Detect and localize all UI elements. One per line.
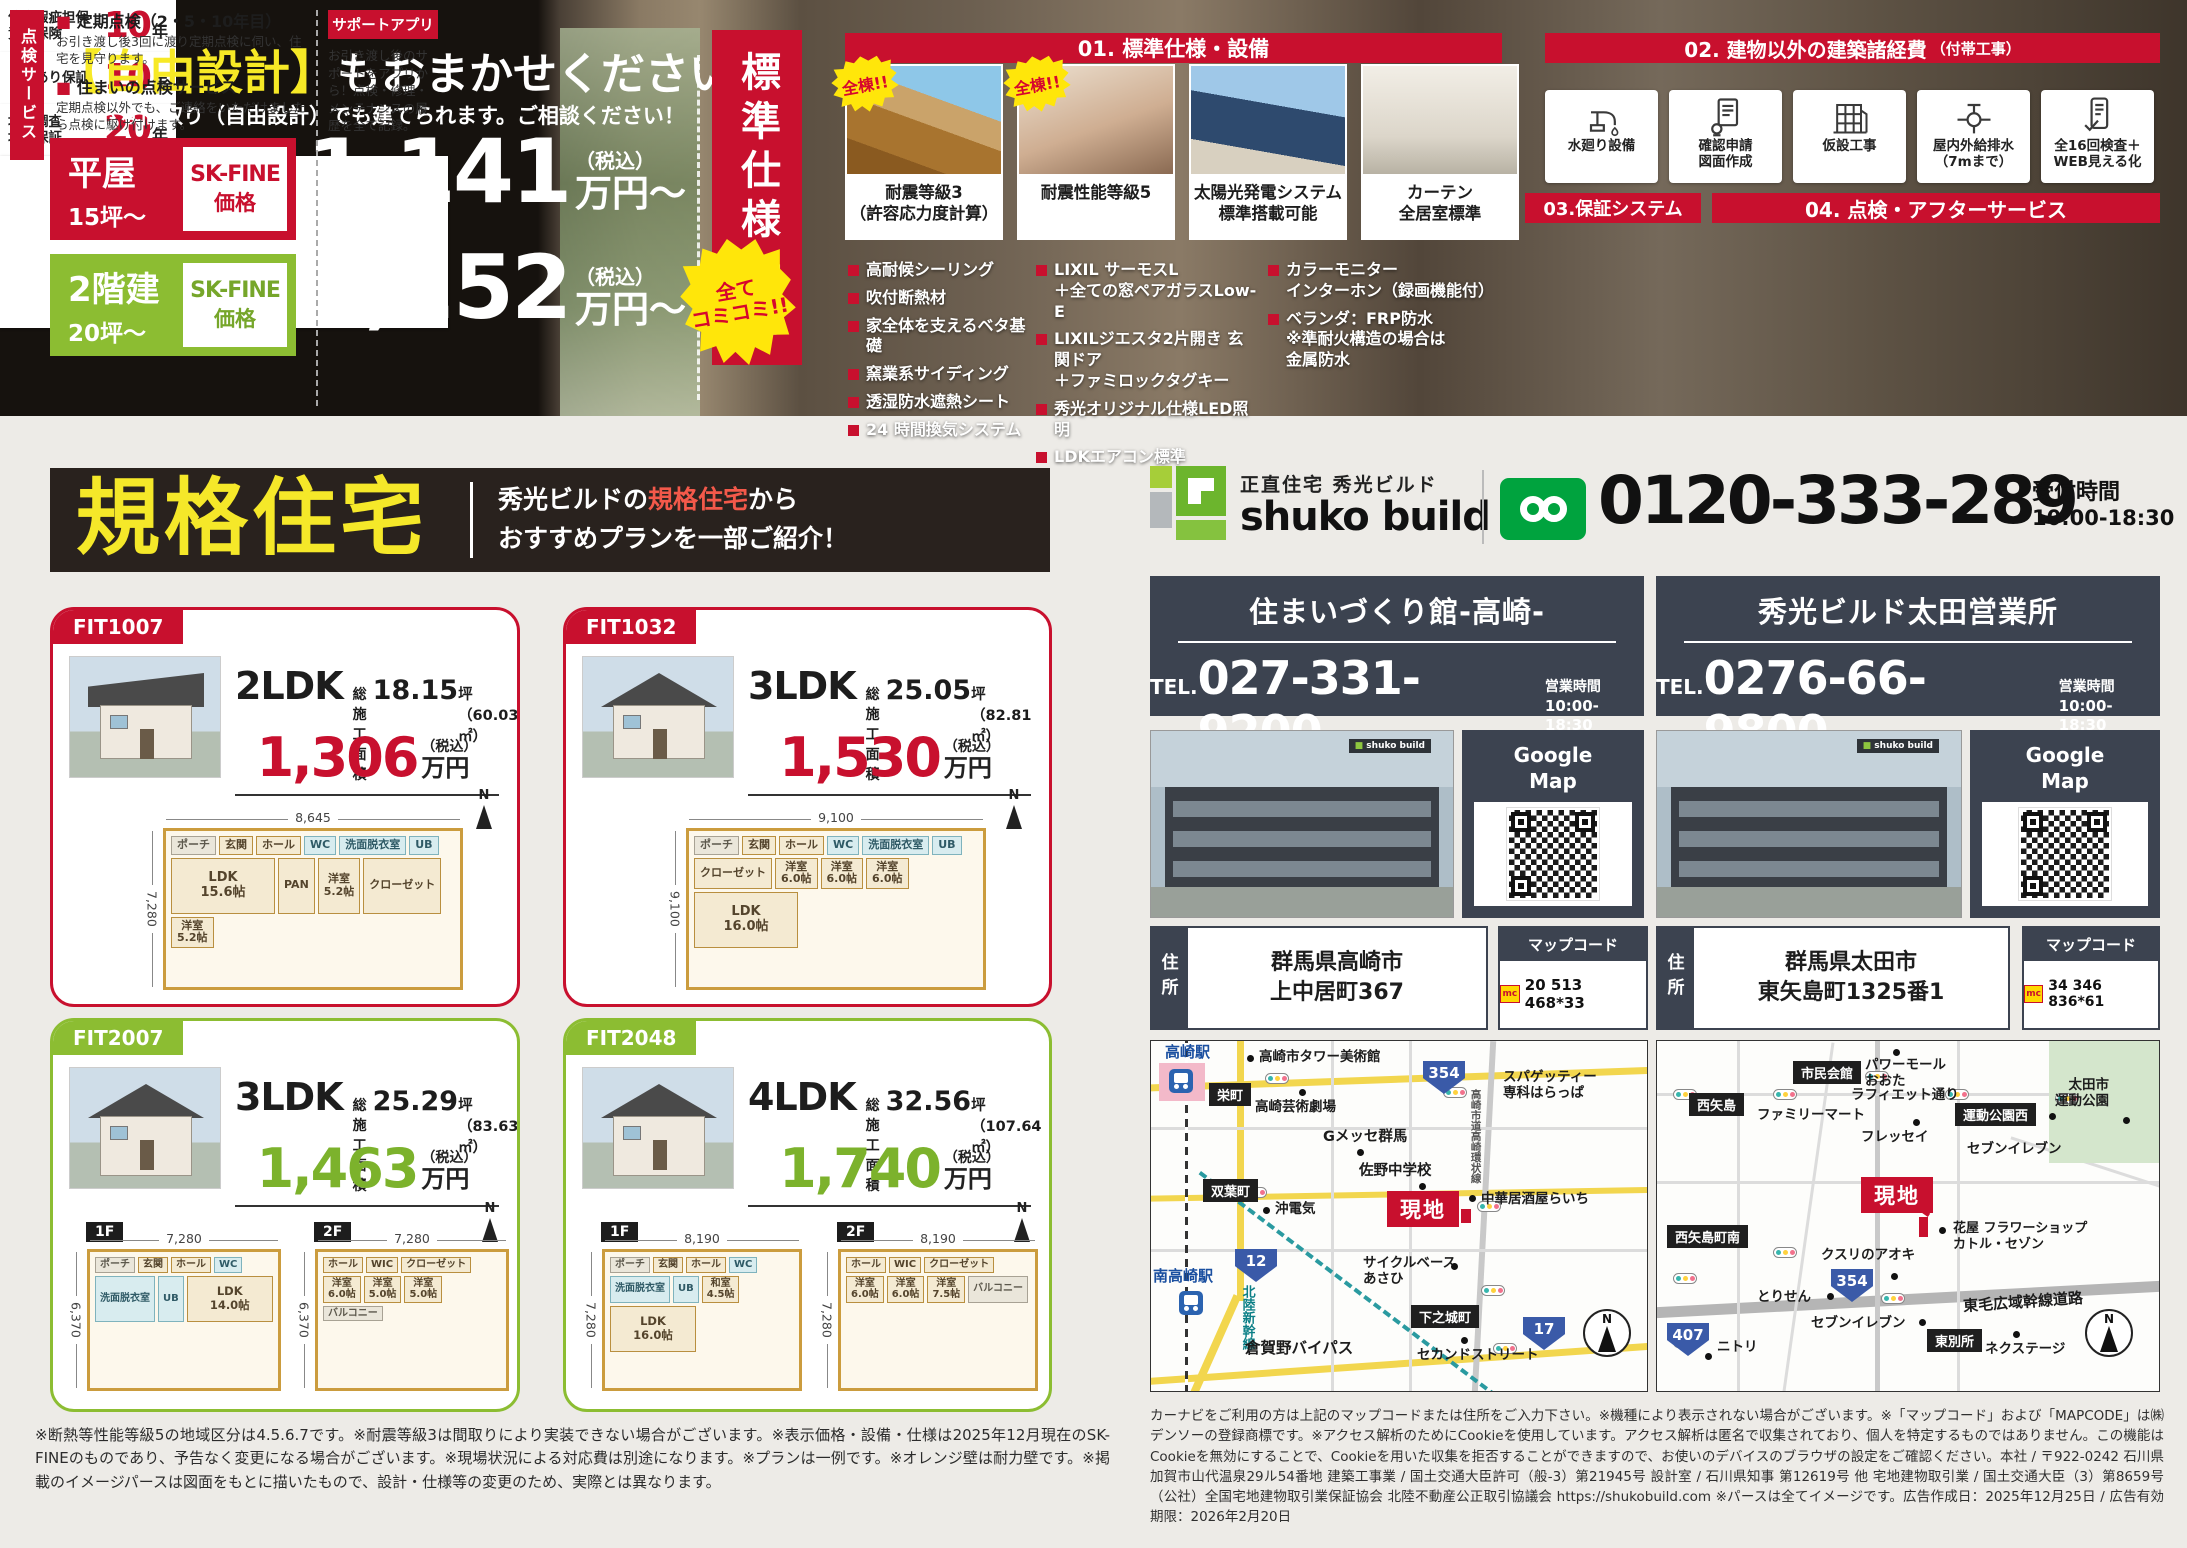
google-map-takasaki: Google Map xyxy=(1462,730,1644,918)
shuko-build-logo xyxy=(1150,466,1226,542)
map-poi-label: 市民会館 xyxy=(1793,1061,1861,1084)
plumbing-icon xyxy=(1951,94,1997,138)
address-ota: 群馬県太田市 東矢島町1325番1 xyxy=(1692,926,2010,1030)
map-poi-label: セブンイレブン xyxy=(1811,1315,1906,1331)
floor-plan-fit1007: 8,645 7,280 ポーチ 玄関 ホール WC 洗面脱衣室 UB LDK 1… xyxy=(163,828,463,990)
floor-plan-fit2048-2f: 2F 8,190 7,280 ホール WIC クローゼット 洋室 6.0帖 洋室… xyxy=(838,1249,1038,1391)
room: WC xyxy=(729,1257,757,1273)
house-render-image xyxy=(69,1067,221,1189)
room: WIC xyxy=(889,1257,921,1273)
room: 洗面脱衣室 xyxy=(95,1276,155,1322)
plan-code-badge: FIT1007 xyxy=(53,610,183,644)
mapcode-ota: マップコード mc34 346 836*61 xyxy=(2022,926,2160,1030)
room: バルコニー xyxy=(968,1276,1028,1303)
route-shield-407: 407 xyxy=(1667,1323,1709,1356)
plan-width-dimension: 9,100 xyxy=(689,810,983,825)
house-render-image xyxy=(69,656,221,778)
plan-width-dimension: 8,190 xyxy=(841,1231,1035,1246)
house-render-image xyxy=(582,1067,734,1189)
map-poi-label: セカンドストリート xyxy=(1417,1347,1539,1363)
room: WC xyxy=(827,836,859,855)
price-row-hiraya: 平屋 15坪〜 SK-FINE 価格 xyxy=(50,138,296,240)
plan-price: 1,306（税込）万円 xyxy=(235,726,499,789)
faucet-icon xyxy=(1579,94,1625,138)
room: クローゼット xyxy=(924,1257,994,1273)
station-icon xyxy=(1179,1291,1203,1315)
room: LDK 15.6帖 xyxy=(171,858,275,914)
cost-card-kensa: 全16回検査＋ WEB見える化 xyxy=(2041,90,2154,183)
room: WC xyxy=(304,836,336,855)
scaffold-icon xyxy=(1827,94,1873,138)
room: UB xyxy=(673,1276,699,1303)
address-takasaki: 群馬県高崎市 上中居町367 xyxy=(1186,926,1488,1030)
compass-icon: N xyxy=(997,788,1031,834)
office-photo-takasaki: ■ shuko build xyxy=(1150,730,1454,918)
room: WIC xyxy=(366,1257,398,1273)
room: LDK 14.0帖 xyxy=(187,1276,273,1322)
price-nikaidate-unit: （税込） 万円〜 xyxy=(575,261,686,331)
sk-fine-badge: SK-FINE 価格 xyxy=(183,147,287,231)
price-hiraya: 1,141 xyxy=(306,128,569,216)
plan-card-fit1032: FIT1032 3LDK 総施工面積 25.05 坪（82.81㎡） 1,530… xyxy=(563,607,1052,1007)
solar-roof-photo xyxy=(1189,64,1347,176)
plan-height-dimension: 7,280 xyxy=(583,1252,599,1388)
floor-plan-fit2007-2f: 2F 7,280 6,370 ホール WIC クローゼット 洋室 6.0帖 洋室… xyxy=(315,1249,509,1391)
map-poi-label: クスリのアオキ xyxy=(1821,1247,1915,1263)
plan-height-dimension: 6,370 xyxy=(68,1252,84,1388)
curtain-room-photo xyxy=(1361,64,1519,176)
plan-code-badge: FIT1032 xyxy=(566,610,696,644)
mapcode-icon: mc xyxy=(2024,985,2043,1003)
map-area-label: 西矢島町南 xyxy=(1667,1225,1748,1248)
room: 洗面脱衣室 xyxy=(339,836,406,855)
mapcode-takasaki: マップコード mc20 513 468*33 xyxy=(1498,926,1648,1030)
brand-tagline: 正直住宅 秀光ビルド xyxy=(1240,470,1438,497)
room: 洋室 5.0帖 xyxy=(404,1276,442,1303)
plan-height-dimension: 9,100 xyxy=(667,831,683,987)
map-poi-label: 沖電気 xyxy=(1275,1201,1316,1217)
map-poi-label: ニトリ xyxy=(1717,1339,1758,1355)
map-area-label: 下之城町 xyxy=(1411,1305,1479,1328)
address-tab: 住所 xyxy=(1150,926,1186,1030)
map-poi-label: Gメッセ群馬 xyxy=(1323,1129,1407,1146)
route-shield-17: 17 xyxy=(1523,1317,1565,1350)
room: ポーチ xyxy=(171,836,216,855)
plan-width-dimension: 8,190 xyxy=(605,1231,799,1246)
site-location-badge: 現地 xyxy=(1861,1177,1933,1213)
cost-card-kakunin: 確認申請 図面作成 xyxy=(1669,90,1782,183)
room: 洋室 5.2帖 xyxy=(171,917,214,948)
map-station-label: 南高崎駅 xyxy=(1153,1267,1213,1285)
map-poi-label: 高崎芸術劇場 xyxy=(1255,1099,1336,1115)
room: LDK 16.0帖 xyxy=(610,1306,696,1352)
plan-code-badge: FIT2048 xyxy=(566,1021,696,1055)
section03-header: 03.保証システム xyxy=(1525,193,1701,223)
map-area-label: 東別所 xyxy=(1927,1329,1982,1352)
plan-price: 1,740（税込）万円 xyxy=(748,1137,1031,1200)
divider xyxy=(697,55,700,400)
inspection-vertical-label: 点検サービス xyxy=(10,10,44,160)
room: 洋室 5.2帖 xyxy=(318,858,361,914)
map-road-label: 倉賀野バイパス xyxy=(1245,1339,1353,1358)
station-icon xyxy=(1169,1069,1193,1093)
floor-plan-fit2048-1f: 1F 8,190 7,280 ポーチ 玄関 ホール WC 洗面脱衣室 UB 和室… xyxy=(602,1249,802,1391)
plan-height-dimension: 7,280 xyxy=(144,831,160,987)
room: クローゼット xyxy=(401,1257,471,1273)
map-road-label: ラフィエット通り xyxy=(1851,1087,1959,1103)
room: ホール xyxy=(846,1257,886,1273)
room: ホール xyxy=(779,836,824,855)
map-poi-label: 佐野中学校 xyxy=(1359,1163,1432,1180)
room: ホール xyxy=(323,1257,363,1273)
room: ホール xyxy=(686,1257,726,1273)
brand-name: shuko build xyxy=(1240,494,1490,540)
main-phone-number: 0120-333-289 xyxy=(1598,462,2076,539)
support-app-badge: サポートアプリ xyxy=(328,10,438,39)
map-poi-label: パワーモール おおた xyxy=(1865,1057,1946,1089)
map-poi-label: ファミリーマート xyxy=(1757,1107,1865,1123)
qr-code xyxy=(2019,808,2111,900)
fineprint-right: カーナビをご利用の方は上記のマップコードまたは住所をご入力下さい。※機種により表… xyxy=(1150,1406,2164,1528)
floor-plan-fit1032: 9,100 9,100 ポーチ 玄関 ホール WC 洗面脱衣室 UB クローゼッ… xyxy=(686,828,986,990)
cost-card-kasetsu: 仮設工事 xyxy=(1793,90,1906,183)
qr-code xyxy=(1507,808,1599,900)
map-area-label: 西矢島 xyxy=(1689,1093,1744,1116)
office-photo-ota: ■ shuko build xyxy=(1656,730,1962,918)
access-map-takasaki: 高崎駅 栄町 高崎市タワー美術館 高崎芸術劇場 354 スパゲッティー 専科はら… xyxy=(1150,1040,1648,1392)
map-area-label: 栄町 xyxy=(1209,1083,1251,1106)
room: 玄関 xyxy=(138,1257,168,1273)
compass-icon: N xyxy=(2085,1309,2133,1357)
room: 洋室 6.0帖 xyxy=(866,858,909,889)
map-poi-label: フレッセイ xyxy=(1861,1129,1929,1145)
price-nikaidate: 1,252 xyxy=(306,244,569,332)
site-location-badge: 現地 xyxy=(1387,1191,1459,1227)
room: バルコニー xyxy=(323,1306,383,1322)
plan-card-fit2007: FIT2007 3LDK 総施工面積 25.29 坪（83.63㎡） 1,463… xyxy=(50,1018,520,1412)
room: 洗面脱衣室 xyxy=(610,1276,670,1303)
plan-price: 1,463（税込）万円 xyxy=(235,1137,499,1200)
reception-hours: 受付時間 10:00-18:30 xyxy=(2032,474,2174,530)
kikaku-title: 規格住宅 xyxy=(76,472,428,564)
flyer-page: 【自由設計】もおまかせください。 お好きな間取り（自由設計）でも建てられます。ご… xyxy=(0,0,2187,1548)
divider xyxy=(470,482,473,558)
plan-card-fit2048: FIT2048 4LDK 総施工面積 32.56 坪（107.64㎡） 1,74… xyxy=(563,1018,1052,1412)
room: UB xyxy=(158,1276,184,1322)
plan-width-dimension: 8,645 xyxy=(166,810,460,825)
office-card-takasaki: 住まいづくり館-高崎- TEL. 027-331-9200 営業時間10:00-… xyxy=(1150,576,1644,716)
access-map-ota: 市民会館 パワーモール おおた 西矢島 ラフィエット通り ファミリーマート 運動… xyxy=(1656,1040,2160,1392)
room: クローゼット xyxy=(363,858,441,914)
google-map-ota: Google Map xyxy=(1970,730,2160,918)
room: ホール xyxy=(256,836,301,855)
map-poi-label: セブンイレブン xyxy=(1967,1141,2062,1157)
map-poi-label: とりせん xyxy=(1757,1289,1811,1305)
plan-code-badge: FIT2007 xyxy=(53,1021,183,1055)
room: 洋室 5.0帖 xyxy=(364,1276,402,1303)
room: ホール xyxy=(171,1257,211,1273)
compass-icon: N xyxy=(1583,1309,1631,1357)
cost-card-kyuhaisui: 屋内外給排水 （7mまで） xyxy=(1917,90,2030,183)
compass-icon: N xyxy=(467,788,501,834)
room: 洋室 6.0帖 xyxy=(821,858,864,889)
top-banner: 【自由設計】もおまかせください。 お好きな間取り（自由設計）でも建てられます。ご… xyxy=(0,0,2187,416)
spec-list-col2: LIXIL サーモスL ＋全ての窓ペアガラスLow-E LIXILジエスタ2片開… xyxy=(1036,260,1258,475)
plan-width-dimension: 7,280 xyxy=(318,1231,506,1246)
room: 洋室 6.0帖 xyxy=(323,1276,361,1303)
room: ポーチ xyxy=(95,1257,135,1273)
price-row-nikaidate: 2階建 20坪〜 SK-FINE 価格 xyxy=(50,254,296,356)
spec-card-solar: 太陽光発電システム 標準搭載可能 xyxy=(1189,64,1347,240)
kikaku-description: 秀光ビルドの規格住宅から おすすめプランを一部ご紹介！ xyxy=(498,481,848,559)
mapcode-icon: mc xyxy=(1500,985,1520,1003)
plan-price: 1,530（税込）万円 xyxy=(748,726,1031,789)
room: WC xyxy=(214,1257,242,1273)
map-station-label: 高崎駅 xyxy=(1165,1043,1210,1061)
sk-fine-badge: SK-FINE 価格 xyxy=(183,263,287,347)
map-road-label: 高崎市道高崎環状線 xyxy=(1469,1089,1482,1184)
room: 玄関 xyxy=(653,1257,683,1273)
kikaku-jutaku-banner: 規格住宅 秀光ビルドの規格住宅から おすすめプランを一部ご紹介！ xyxy=(50,468,1050,572)
map-poi-label: スパゲッティー 専科はらっぱ xyxy=(1503,1069,1597,1101)
room: UB xyxy=(409,836,438,855)
map-area-label: 運動公園西 xyxy=(1955,1103,2036,1126)
spec-list-col1: 高耐候シーリング 吹付断熱材 家全体を支えるベタ基礎 窯業系サイディング 透湿防… xyxy=(848,260,1028,448)
room: 玄関 xyxy=(742,836,776,855)
section02-header: 02. 建物以外の建築諸経費（付帯工事） xyxy=(1545,33,2160,63)
address-tab: 住所 xyxy=(1656,926,1692,1030)
room: 洋室 6.0帖 xyxy=(775,858,818,889)
map-poi-label: 中華居酒屋らいち xyxy=(1481,1191,1589,1207)
map-area-label: 双葉町 xyxy=(1203,1179,1258,1202)
room: 和室 4.5帖 xyxy=(702,1276,740,1303)
section04-header: 04. 点検・アフターサービス xyxy=(1712,193,2160,223)
room: 洋室 6.0帖 xyxy=(846,1276,884,1303)
spec-list-col3: カラーモニター インターホン（録画機能付） ベランダ：FRP防水 ※準耐火構造の… xyxy=(1268,260,1518,378)
room: PAN xyxy=(278,858,315,914)
fineprint-left: ※断熱等性能等級5の地域区分は4.5.6.7です。※耐震等級3は間取りにより実装… xyxy=(35,1424,1110,1494)
plan-height-dimension: 6,370 xyxy=(296,1252,312,1388)
map-poi-label: 太田市 運動公園 xyxy=(2055,1077,2109,1109)
room: 洋室 7.5帖 xyxy=(927,1276,965,1303)
plan-width-dimension: 7,280 xyxy=(90,1231,278,1246)
map-poi-label: 高崎市タワー美術館 xyxy=(1259,1049,1381,1065)
floor-plan-fit2007-1f: 1F 7,280 6,370 ポーチ 玄関 ホール WC 洗面脱衣室 UB LD… xyxy=(87,1249,281,1391)
map-poi-label: ネクステージ xyxy=(1985,1341,2065,1357)
divider xyxy=(316,10,318,406)
room: 玄関 xyxy=(219,836,253,855)
freedial-icon xyxy=(1500,478,1586,540)
map-poi-label: サイクルベース あさひ xyxy=(1363,1255,1456,1287)
section01-header: 01. 標準仕様・設備 xyxy=(845,33,1502,63)
office-card-ota: 秀光ビルド太田営業所 TEL. 0276-66-9800 営業時間10:00-1… xyxy=(1656,576,2160,716)
room: 洋室 6.0帖 xyxy=(887,1276,925,1303)
room: ポーチ xyxy=(610,1257,650,1273)
room: 洗面脱衣室 xyxy=(862,836,929,855)
plan-height-dimension: 7,280 xyxy=(819,1252,835,1388)
house-render-image xyxy=(582,656,734,778)
map-poi-label: 花屋 フラワーショップ カトル・セゾン xyxy=(1953,1221,2087,1252)
room: LDK 16.0帖 xyxy=(694,892,798,948)
cost-card-mizumawari: 水廻り設備 xyxy=(1545,90,1658,183)
spec-card-curtain: カーテン 全居室標準 xyxy=(1361,64,1519,240)
plan-card-fit1007: FIT1007 2LDK 総施工面積 18.15 坪（60.03㎡） 1,306… xyxy=(50,607,520,1007)
blueprint-icon xyxy=(1703,94,1749,138)
room: クローゼット xyxy=(694,858,772,889)
inspection-app-icon xyxy=(2075,94,2121,138)
room: ポーチ xyxy=(694,836,739,855)
room: UB xyxy=(932,836,961,855)
price-hiraya-unit: （税込） 万円〜 xyxy=(575,145,686,215)
divider xyxy=(1482,470,1484,544)
